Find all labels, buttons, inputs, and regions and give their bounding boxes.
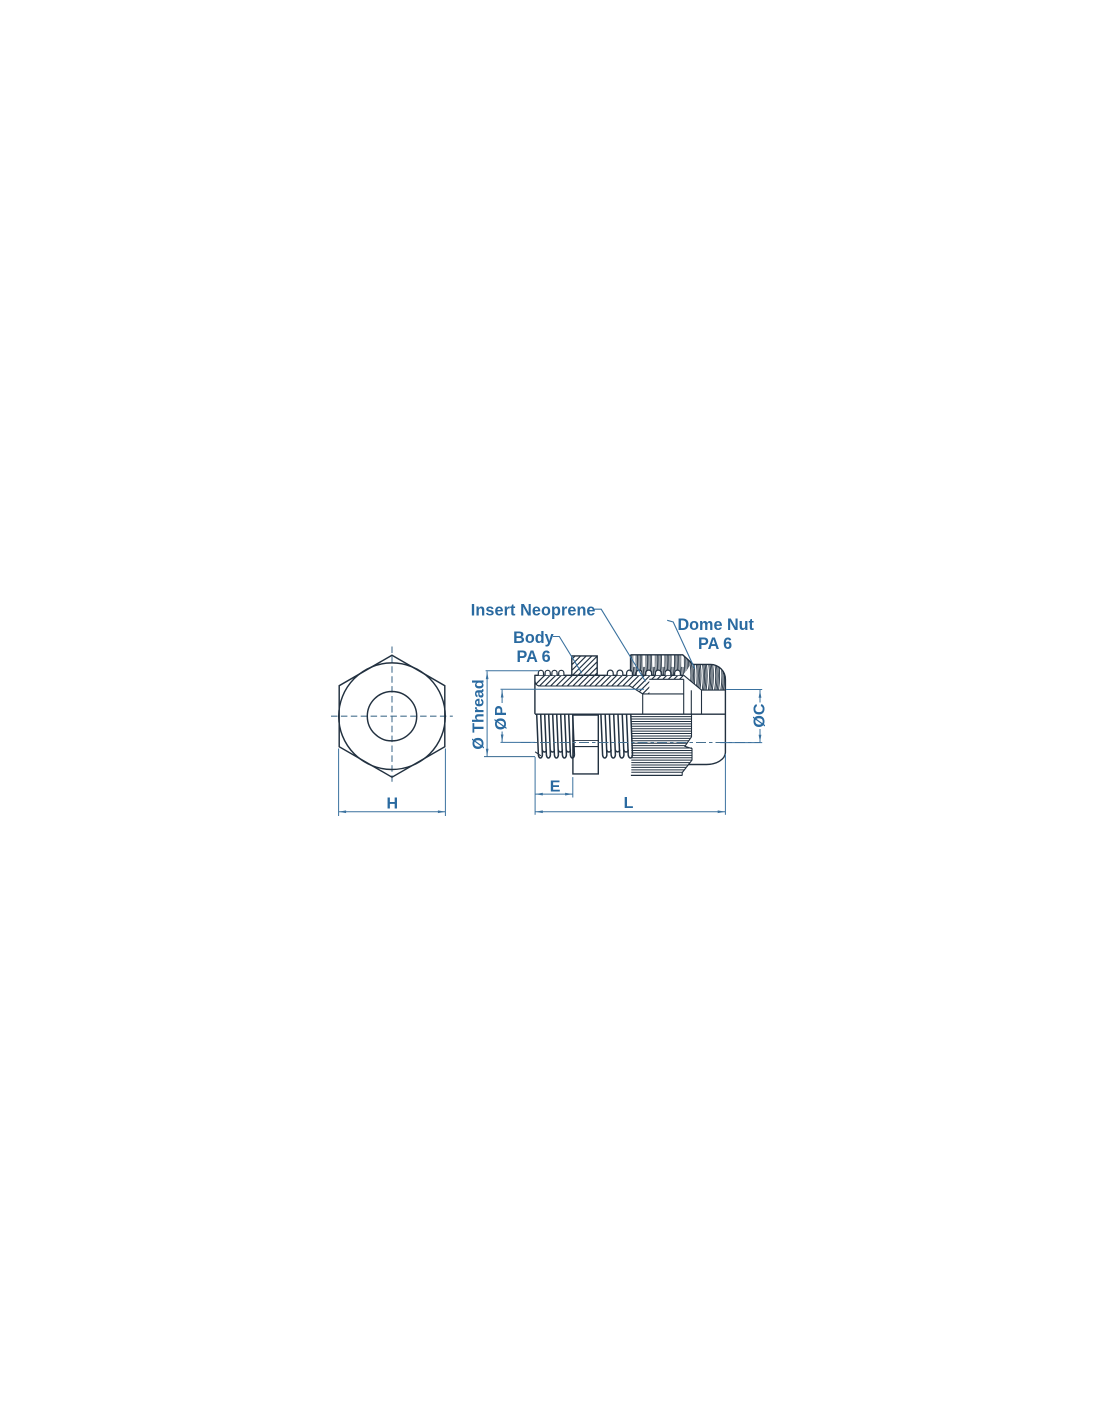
svg-text:Ø Thread: Ø Thread bbox=[470, 679, 487, 749]
svg-text:PA 6: PA 6 bbox=[517, 648, 551, 666]
svg-text:L: L bbox=[624, 795, 634, 812]
svg-text:Body: Body bbox=[513, 629, 553, 647]
svg-text:E: E bbox=[550, 778, 561, 795]
svg-text:ØP: ØP bbox=[493, 704, 510, 730]
svg-text:PA 6: PA 6 bbox=[698, 635, 732, 653]
svg-text:Insert Neoprene: Insert Neoprene bbox=[471, 602, 596, 620]
svg-text:H: H bbox=[387, 795, 399, 812]
svg-text:ØC: ØC bbox=[751, 703, 768, 727]
svg-text:Dome Nut: Dome Nut bbox=[677, 616, 754, 634]
